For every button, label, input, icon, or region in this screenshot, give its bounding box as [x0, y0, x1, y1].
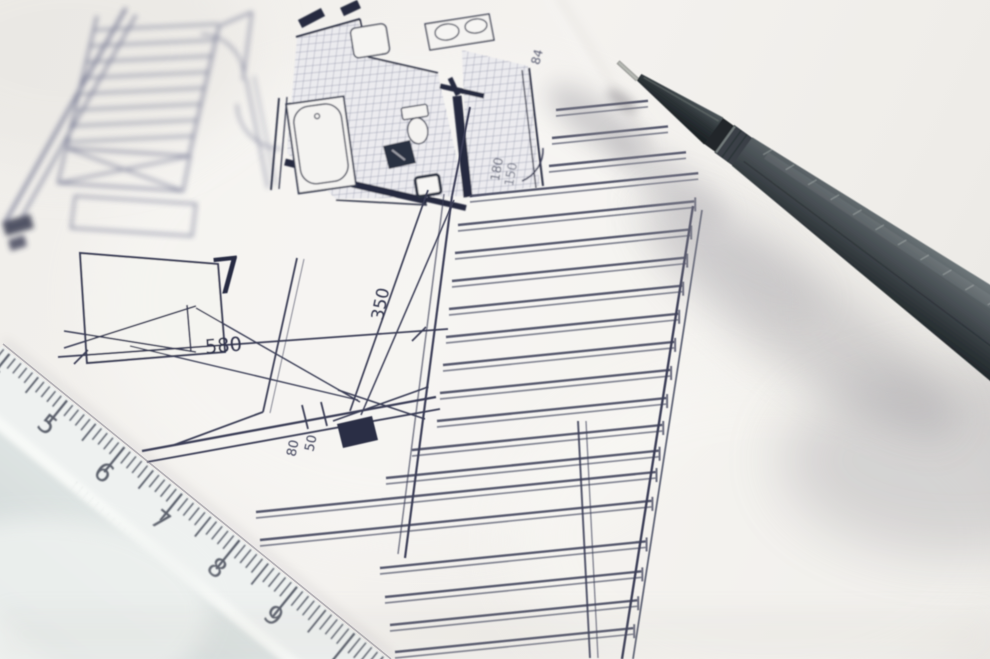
scene-photo: 84 180 150 7 580 350 80 50	[0, 0, 990, 659]
vignette	[0, 610, 990, 659]
pen-needle-tip	[617, 63, 639, 80]
wall-poche	[8, 235, 27, 251]
room-number-label: 7	[208, 246, 246, 307]
shower-tray	[350, 23, 390, 58]
floor-drain	[415, 174, 442, 197]
dim-84-label: 84	[528, 48, 545, 66]
photo-architectural-plan: 84 180 150 7 580 350 80 50	[0, 0, 990, 659]
bathroom-drawing: 84 180 150	[271, 4, 546, 208]
bathtub	[286, 96, 356, 193]
wall-poche	[300, 12, 323, 24]
wall-poche	[342, 4, 359, 12]
dim-580-label: 580	[204, 332, 243, 358]
